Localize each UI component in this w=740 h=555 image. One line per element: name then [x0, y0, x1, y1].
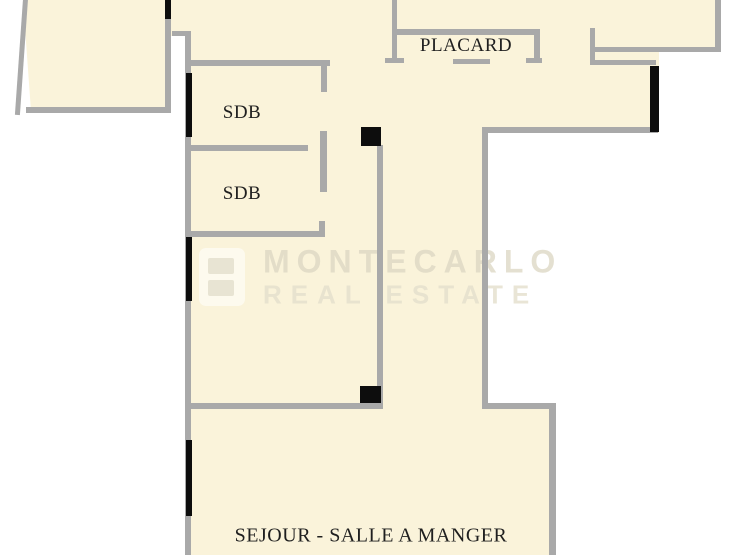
wall-hall-right [482, 127, 488, 403]
wall-topleft-right [165, 19, 171, 113]
wall-sejour-right [549, 403, 556, 555]
wall-sejour-top-left [188, 403, 383, 409]
floor-top-right-hall [488, 0, 659, 133]
wall-placard-cap-right [526, 58, 542, 63]
outside-notch [171, 36, 186, 113]
wall-topleft-slanted-left [15, 0, 28, 115]
window-topleft-right-top [165, 0, 171, 19]
wall-topright-bottom [592, 47, 721, 52]
wall-placard-cap-left [385, 58, 404, 63]
label-placard: PLACARD [420, 35, 512, 57]
wall-topright-right [715, 0, 721, 52]
window-left-spine-middle [186, 237, 192, 301]
floor-plan: MONTECARLO REAL ESTATE PLACARD SDB SDB S… [0, 0, 740, 555]
wall-entry-step [592, 60, 656, 65]
watermark-line1: MONTECARLO [263, 244, 562, 281]
window-sejour-left [186, 440, 192, 516]
floor-top-right-room [659, 0, 721, 52]
wall-hall-top-right [482, 127, 658, 133]
wall-sdb2-bottom-jamb [319, 221, 325, 231]
door-entry-black [650, 66, 659, 132]
wall-placard-cap-middle [453, 59, 490, 64]
floor-top-left-room [23, 0, 171, 113]
pillar-hall-top [361, 127, 381, 146]
label-sdb-2: SDB [223, 183, 261, 205]
watermark-logo-bar [208, 280, 234, 296]
wall-topleft-bottom [26, 107, 171, 113]
window-left-spine-upper [186, 73, 192, 137]
label-sdb-1: SDB [223, 102, 261, 124]
wall-sejour-top-right [482, 403, 556, 409]
outside-left [0, 113, 186, 555]
watermark-logo-bar [208, 258, 234, 274]
wall-sdb2-bottom [188, 231, 325, 237]
wall-sdb1-top-jamb [321, 66, 327, 92]
wall-sdb1-top [190, 60, 330, 66]
watermark-logo [199, 248, 245, 306]
wall-sdb-door-jamb [320, 131, 327, 192]
wall-sdb-divider [191, 145, 308, 151]
watermark-line2: REAL ESTATE [263, 280, 538, 311]
wall-hall-left [377, 145, 383, 404]
label-sejour: SEJOUR - SALLE A MANGER [235, 525, 508, 548]
